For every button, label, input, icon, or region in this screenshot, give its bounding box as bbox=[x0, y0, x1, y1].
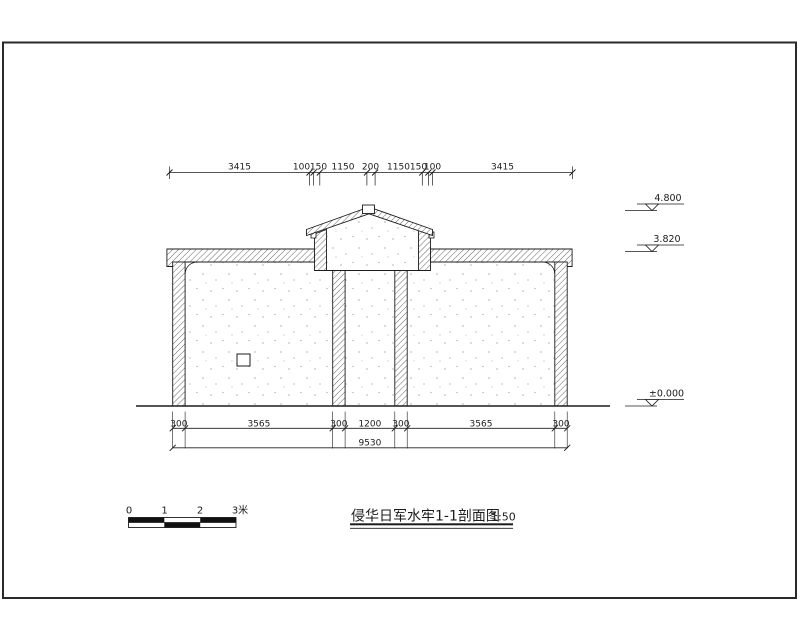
drawing-title-block: 侵华日军水牢1-1剖面图 1:50 bbox=[350, 508, 516, 529]
scale-bar-label: 0 bbox=[126, 506, 132, 517]
section-drawing-canvas: 3415 100 150 1150 200 1150 150 100 3415 … bbox=[0, 0, 800, 640]
top-dimension-string: 3415 100 150 1150 200 1150 150 100 3415 bbox=[170, 163, 573, 173]
scale-bar-label: 1 bbox=[161, 506, 167, 517]
left-exterior-wall bbox=[173, 262, 185, 406]
shaft-wall-left bbox=[333, 271, 345, 407]
dim-label: 3415 bbox=[228, 163, 251, 173]
elevation-value: ±0.000 bbox=[649, 389, 684, 400]
elevation-value: 3.820 bbox=[653, 234, 680, 245]
drawing-title: 侵华日军水牢1-1剖面图 bbox=[351, 508, 500, 525]
dim-total-label: 9530 bbox=[358, 438, 381, 448]
dim-label: 100 bbox=[424, 163, 441, 173]
right-room-fill bbox=[407, 262, 555, 406]
dim-label: 1200 bbox=[358, 419, 381, 429]
shaft-wall-right bbox=[395, 271, 407, 407]
title-underline-thick bbox=[350, 523, 513, 525]
drawing-scale: 1:50 bbox=[491, 511, 516, 524]
dim-label: 150 bbox=[310, 163, 327, 173]
ridge-cap bbox=[363, 205, 375, 214]
dim-label: 3415 bbox=[491, 163, 514, 173]
wall-opening-square bbox=[237, 354, 250, 366]
scale-bar-label: 3米 bbox=[232, 504, 248, 517]
dim-label: 100 bbox=[293, 163, 310, 173]
scale-bar-segment bbox=[129, 518, 165, 523]
dim-label: 1150 bbox=[387, 163, 410, 173]
dim-label: 3565 bbox=[470, 419, 493, 429]
right-exterior-wall bbox=[555, 262, 567, 406]
scale-bar-segment bbox=[164, 523, 200, 528]
scale-bar-segment bbox=[200, 518, 236, 523]
drawing-sheet: 3415 100 150 1150 200 1150 150 100 3415 … bbox=[0, 0, 800, 640]
central-shaft-fill bbox=[345, 271, 395, 406]
elevation-value: 4.800 bbox=[654, 193, 681, 204]
scale-bar-label: 2 bbox=[197, 506, 203, 517]
dim-label: 3565 bbox=[247, 419, 270, 429]
left-room-fill bbox=[185, 262, 333, 406]
dim-label: 1150 bbox=[332, 163, 355, 173]
